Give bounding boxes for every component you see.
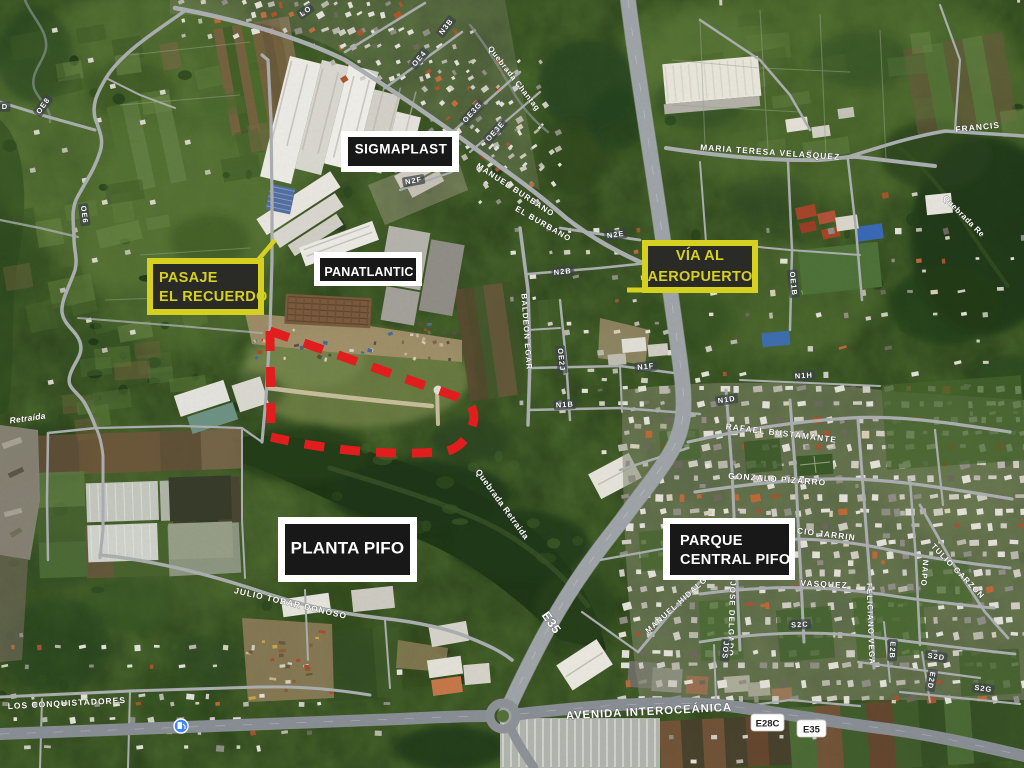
svg-text:PARQUE: PARQUE bbox=[680, 533, 743, 549]
svg-text:EL RECUERDO: EL RECUERDO bbox=[159, 289, 268, 305]
svg-text:SIGMAPLAST: SIGMAPLAST bbox=[355, 142, 448, 157]
svg-text:PANATLANTIC: PANATLANTIC bbox=[324, 265, 413, 279]
svg-text:CENTRAL PIFO: CENTRAL PIFO bbox=[680, 552, 790, 568]
svg-text:N2B: N2B bbox=[553, 266, 572, 277]
svg-text:PLANTA PIFO: PLANTA PIFO bbox=[291, 539, 405, 558]
svg-text:D: D bbox=[2, 102, 8, 111]
svg-text:VÍA AL: VÍA AL bbox=[676, 247, 724, 264]
svg-text:N1H: N1H bbox=[795, 370, 814, 380]
svg-text:N1F: N1F bbox=[637, 361, 655, 372]
svg-text:JOS: JOS bbox=[720, 641, 731, 660]
svg-text:N1B: N1B bbox=[556, 399, 575, 409]
svg-text:S2C: S2C bbox=[791, 619, 809, 629]
svg-text:AEROPUERTO: AEROPUERTO bbox=[647, 269, 752, 285]
svg-text:E28C: E28C bbox=[756, 719, 780, 730]
svg-text:PASAJE: PASAJE bbox=[159, 270, 218, 286]
svg-text:E35: E35 bbox=[803, 725, 821, 736]
svg-text:E2B: E2B bbox=[888, 641, 898, 659]
